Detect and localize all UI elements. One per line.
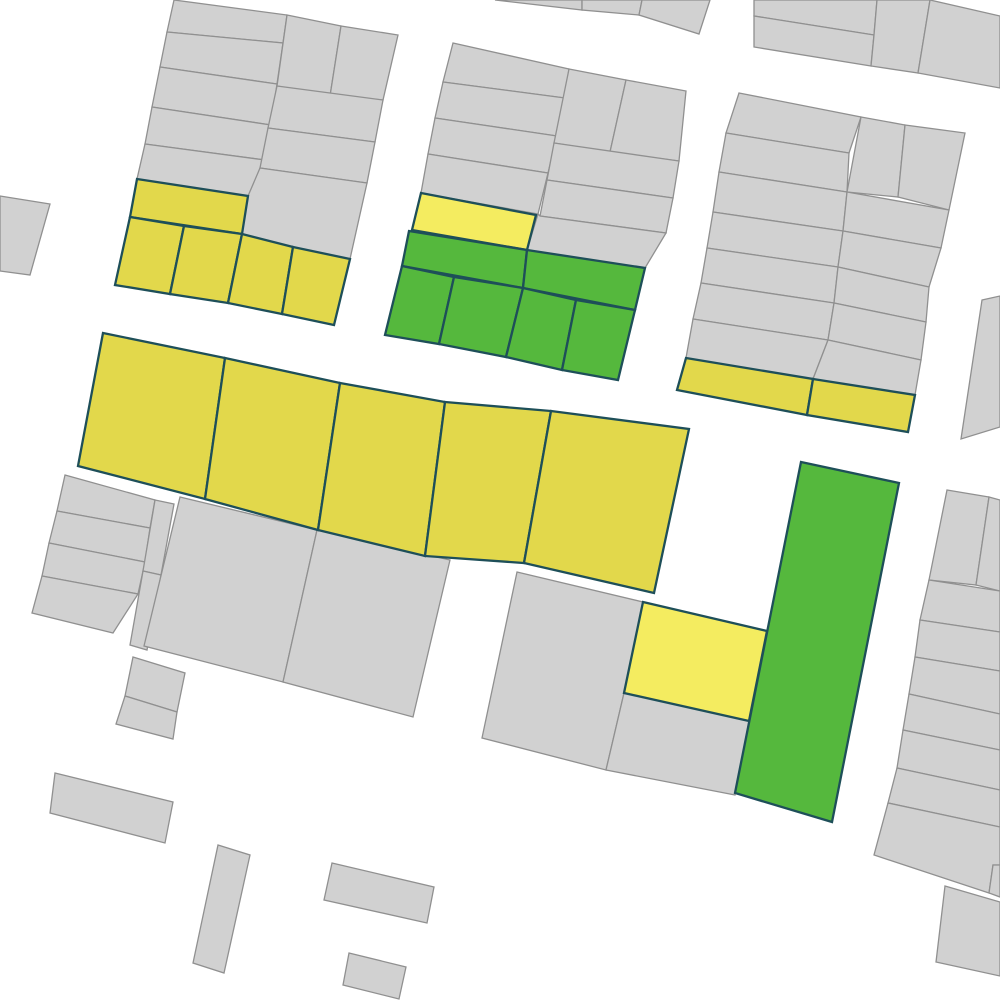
parcel-left-edge xyxy=(0,196,50,275)
parcel-blockE-yellow-2 xyxy=(205,358,340,530)
parcel-blockE-yellow-5 xyxy=(524,411,689,593)
parcel-right-upper xyxy=(961,296,1000,439)
parcel-small-rect-2 xyxy=(193,845,250,973)
parcel-small-rect-3 xyxy=(324,863,434,923)
parcel-blockA-t2 xyxy=(330,26,398,100)
parcel-small-rect-4 xyxy=(343,953,406,999)
parcel-small-rect-1 xyxy=(50,773,173,843)
parcel-blockE-yellow-3 xyxy=(318,383,445,556)
parcel-blockE-yellow-1 xyxy=(78,333,225,499)
parcel-blockB-green-4 xyxy=(562,300,635,380)
parcel-top-sliver-3 xyxy=(639,0,710,34)
parcel-blockC-t2 xyxy=(898,125,965,210)
parcel-top-sliver-2 xyxy=(582,0,642,15)
parcel-blockA-yellow-4 xyxy=(282,247,350,325)
parcel-top-sliver-1 xyxy=(495,0,582,10)
parcel-corner-bottom-right xyxy=(936,886,1000,976)
parcel-topright-d xyxy=(918,0,1000,88)
map-canvas[interactable] xyxy=(0,0,1000,1000)
parcel-map[interactable] xyxy=(0,0,1000,1000)
